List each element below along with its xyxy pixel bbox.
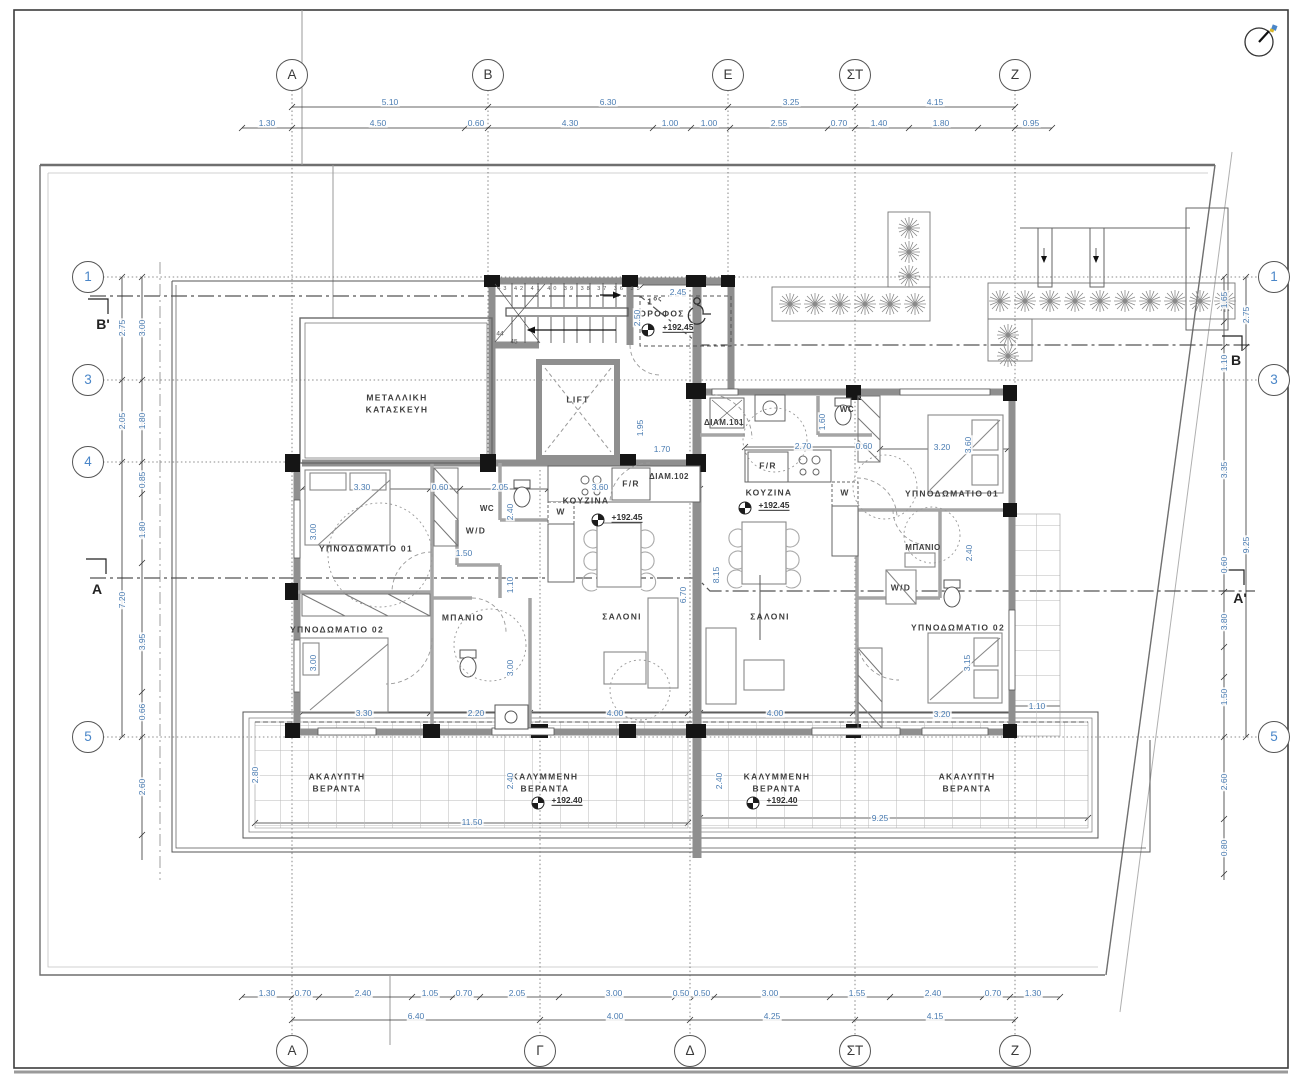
dim: 1.95 — [636, 419, 645, 438]
room-label-bed1-right: ΥΠΝΟΔΩΜΑΤΙΟ 01 — [905, 488, 999, 499]
dim: 5.10 — [381, 98, 400, 107]
room-label-wd-left: W/D — [466, 525, 486, 536]
dim: 3.30 — [353, 483, 372, 492]
label-w-left: W — [556, 506, 565, 517]
dim: 2.70 — [794, 442, 813, 451]
dim: 2.60 — [138, 778, 147, 797]
dim: 2.05 — [491, 483, 510, 492]
dim: 0.80 — [1220, 839, 1229, 858]
dim: 3.00 — [605, 989, 624, 998]
dim: 0.85 — [138, 471, 147, 490]
grid-bubble-left-3: 3 — [72, 364, 104, 396]
storey-label: 1ος — [647, 296, 662, 307]
dim: 3.80 — [1220, 613, 1229, 632]
dim: 1.80 — [138, 412, 147, 431]
apartment-label-102: ΔΙΑΜ.102 — [649, 472, 689, 482]
dim: 2.75 — [118, 319, 127, 338]
dim: 2.75 — [1242, 306, 1251, 325]
room-label-salon-right: ΣΑΛΟΝΙ — [750, 611, 790, 622]
dim: 1.65 — [1220, 291, 1229, 310]
veranda-label-uncovered-right-2: ΒΕΡΑΝΤΑ — [943, 783, 992, 794]
dim: 6.70 — [679, 586, 688, 605]
room-label-metal-1: ΜΕΤΑΛΛΙΚΗ — [366, 392, 427, 403]
veranda-label-uncovered-left-2: ΒΕΡΑΝΤΑ — [313, 783, 362, 794]
stair-tread-numbers: 43 42 41 40 39 38 37 36 35 — [497, 286, 642, 292]
grid-bubble-left-1: 1 — [72, 261, 104, 293]
dim: 3.15 — [963, 654, 972, 673]
dim: 6.30 — [599, 98, 618, 107]
grid-bubble-bottom-g: Γ — [524, 1035, 556, 1067]
level-value-stair: +192.45 — [663, 323, 694, 333]
dim: 0.50 — [672, 989, 691, 998]
dim: 1.60 — [818, 413, 827, 432]
dim: 3.95 — [138, 633, 147, 652]
section-lines — [90, 296, 1255, 591]
dim: 1.80 — [932, 119, 951, 128]
dim: 1.80 — [138, 521, 147, 540]
dim: 1.00 — [700, 119, 719, 128]
dim: 2.40 — [965, 544, 974, 563]
stair — [495, 283, 628, 343]
veranda-label-uncovered-right-1: ΑΚΑΛΥΠΤΗ — [939, 771, 996, 782]
plan-linework — [0, 0, 1302, 1080]
room-label-kitchen-left: ΚΟΥΖΙΝΑ — [563, 495, 610, 506]
dim: 9.25 — [1242, 536, 1251, 555]
dim: 4.00 — [606, 709, 625, 718]
apartment-label-101: ΔΙΑΜ.101 — [704, 418, 744, 428]
grid-bubble-left-5: 5 — [72, 721, 104, 753]
room-label-salon-left: ΣΑΛΟΝΙ — [602, 611, 642, 622]
dim: 1.30 — [258, 119, 277, 128]
dim: 4.25 — [763, 1012, 782, 1021]
dim: 2.50 — [633, 309, 642, 328]
level-marker-icon — [532, 797, 545, 810]
dim: 2.40 — [506, 772, 515, 791]
section-label-b-prime: B' — [96, 316, 109, 332]
grid-bubble-right-3: 3 — [1258, 364, 1290, 396]
dim: 8.15 — [712, 566, 721, 585]
dim: 2.55 — [770, 119, 789, 128]
dim: 1.30 — [1024, 989, 1043, 998]
veranda-label-covered-right-2: ΒΕΡΑΝΤΑ — [753, 783, 802, 794]
dim: 4.00 — [766, 709, 785, 718]
storey-suffix: ος — [653, 297, 662, 303]
dimension-lines — [119, 104, 1249, 1023]
label-w-right: W — [840, 487, 849, 498]
dim: 3.00 — [138, 319, 147, 338]
dim: 2.45 — [669, 288, 688, 297]
dim: 4.30 — [561, 119, 580, 128]
level-marker-icon — [592, 514, 605, 527]
dim: 3.35 — [1220, 461, 1229, 480]
dim: 2.05 — [118, 412, 127, 431]
level-value-veranda-right: +192.40 — [767, 796, 798, 806]
section-label-b-right: B — [1231, 352, 1241, 368]
dim: 2.40 — [924, 989, 943, 998]
dim: 6.40 — [407, 1012, 426, 1021]
dim: 0.60 — [467, 119, 486, 128]
dim: 9.25 — [871, 814, 890, 823]
dim: 0.60 — [431, 483, 450, 492]
dim: 1.70 — [653, 445, 672, 454]
grid-bubble-top-e: E — [712, 59, 744, 91]
dim: 7.20 — [118, 591, 127, 610]
room-label-metal-2: ΚΑΤΑΣΚΕΥΗ — [366, 404, 429, 415]
room-label-lift: LIFT — [566, 394, 589, 405]
grid-bubble-right-1: 1 — [1258, 261, 1290, 293]
dim: 3.00 — [309, 523, 318, 542]
dim: 3.20 — [933, 710, 952, 719]
dim: 11.50 — [461, 818, 484, 827]
dim: 0.70 — [830, 119, 849, 128]
section-flags — [86, 299, 1244, 585]
room-label-kitchen-right: ΚΟΥΖΙΝΑ — [746, 487, 793, 498]
grid-bubble-left-4: 4 — [72, 446, 104, 478]
dim: 2.40 — [715, 772, 724, 791]
dim: 3.60 — [591, 483, 610, 492]
dim: 1.00 — [661, 119, 680, 128]
metal-structure-outline — [300, 318, 492, 463]
sheet-border — [14, 10, 1288, 1072]
dim: 2.40 — [506, 503, 515, 522]
veranda-label-covered-right-1: ΚΑΛΥΜΜΕΝΗ — [744, 771, 811, 782]
room-label-wc-right: WC — [840, 405, 854, 415]
lift-shaft — [539, 362, 617, 458]
dim: 0.95 — [1022, 119, 1041, 128]
grid-lines — [103, 90, 1259, 1036]
veranda-label-uncovered-left-1: ΑΚΑΛΥΠΤΗ — [309, 771, 366, 782]
level-marker-icon — [747, 797, 760, 810]
dim: 4.50 — [369, 119, 388, 128]
storey-word: ΟΡΟΦΟΣ — [639, 308, 684, 319]
dim: 0.60 — [855, 442, 874, 451]
dim: 1.50 — [455, 549, 474, 558]
dim: 2.60 — [1220, 773, 1229, 792]
dim: 3.25 — [782, 98, 801, 107]
dim: 1.05 — [421, 989, 440, 998]
grid-bubble-top-z: Z — [999, 59, 1031, 91]
grid-bubble-top-b: B — [472, 59, 504, 91]
lift-cross — [545, 368, 611, 452]
dim: 3.30 — [355, 709, 374, 718]
dim: 1.50 — [1220, 688, 1229, 707]
north-arrow-icon — [1245, 24, 1278, 56]
stair-number-44: 44 — [496, 331, 503, 338]
dim: 2.20 — [467, 709, 486, 718]
dim: 0.70 — [294, 989, 313, 998]
dim: 3.00 — [761, 989, 780, 998]
dim: 0.66 — [138, 703, 147, 722]
floor-plan-sheet: A B E ΣΤ Z A Γ Δ ΣΤ Z 1 3 4 5 1 3 5 B' A… — [0, 0, 1302, 1080]
dim: 0.70 — [455, 989, 474, 998]
grid-bubble-right-5: 5 — [1258, 721, 1290, 753]
dim: 4.15 — [926, 1012, 945, 1021]
level-marker-icon — [739, 502, 752, 515]
dim: 4.15 — [926, 98, 945, 107]
grid-bubble-top-a: A — [276, 59, 308, 91]
section-label-a-left: A — [92, 581, 102, 597]
grid-bubble-bottom-z: Z — [999, 1035, 1031, 1067]
label-fr-left: F/R — [622, 478, 640, 489]
room-label-wd-right: W/D — [891, 582, 911, 593]
dim: 1.30 — [258, 989, 277, 998]
room-label-bed2-right: ΥΠΝΟΔΩΜΑΤΙΟ 02 — [911, 622, 1005, 633]
neighbour-structures — [1020, 208, 1228, 330]
dim: 3.60 — [964, 436, 973, 455]
section-label-a-prime: A' — [1233, 590, 1246, 606]
veranda-label-covered-left-2: ΒΕΡΑΝΤΑ — [521, 783, 570, 794]
dim: 4.00 — [606, 1012, 625, 1021]
hedge-planters — [772, 212, 1236, 367]
grid-bubble-top-st: ΣΤ — [839, 59, 871, 91]
dim: 1.10 — [506, 576, 515, 595]
stair-number-45: 45 — [510, 339, 517, 346]
dim: 0.50 — [693, 989, 712, 998]
room-label-bath-left: ΜΠΑΝΙΟ — [442, 612, 484, 623]
room-label-bath-right: ΜΠΑΝΙΟ — [905, 543, 940, 553]
veranda-label-covered-left-1: ΚΑΛΥΜΜΕΝΗ — [512, 771, 579, 782]
dim: 3.20 — [933, 443, 952, 452]
room-label-wc-left: WC — [480, 504, 494, 514]
level-marker-icon — [642, 324, 655, 337]
dim: 3.00 — [506, 659, 515, 678]
grid-bubble-bottom-d: Δ — [674, 1035, 706, 1067]
dim: 3.00 — [309, 654, 318, 673]
dim: 0.70 — [984, 989, 1003, 998]
dim: 1.55 — [848, 989, 867, 998]
room-label-bed1-left: ΥΠΝΟΔΩΜΑΤΙΟ 01 — [319, 543, 413, 554]
level-value-salon-right: +192.45 — [759, 501, 790, 511]
dim: 0.60 — [1220, 556, 1229, 575]
grid-bubble-bottom-st: ΣΤ — [839, 1035, 871, 1067]
dim: 1.40 — [870, 119, 889, 128]
grid-bubble-bottom-a: A — [276, 1035, 308, 1067]
level-value-salon-left: +192.45 — [612, 513, 643, 523]
level-value-veranda-left: +192.40 — [552, 796, 583, 806]
dim: 2.05 — [508, 989, 527, 998]
dim: 2.80 — [251, 766, 260, 785]
label-fr-right: F/R — [759, 460, 777, 471]
dim: 1.10 — [1028, 702, 1047, 711]
room-label-bed2-left: ΥΠΝΟΔΩΜΑΤΙΟ 02 — [290, 624, 384, 635]
dim: 1.10 — [1220, 354, 1229, 373]
dim: 2.40 — [354, 989, 373, 998]
